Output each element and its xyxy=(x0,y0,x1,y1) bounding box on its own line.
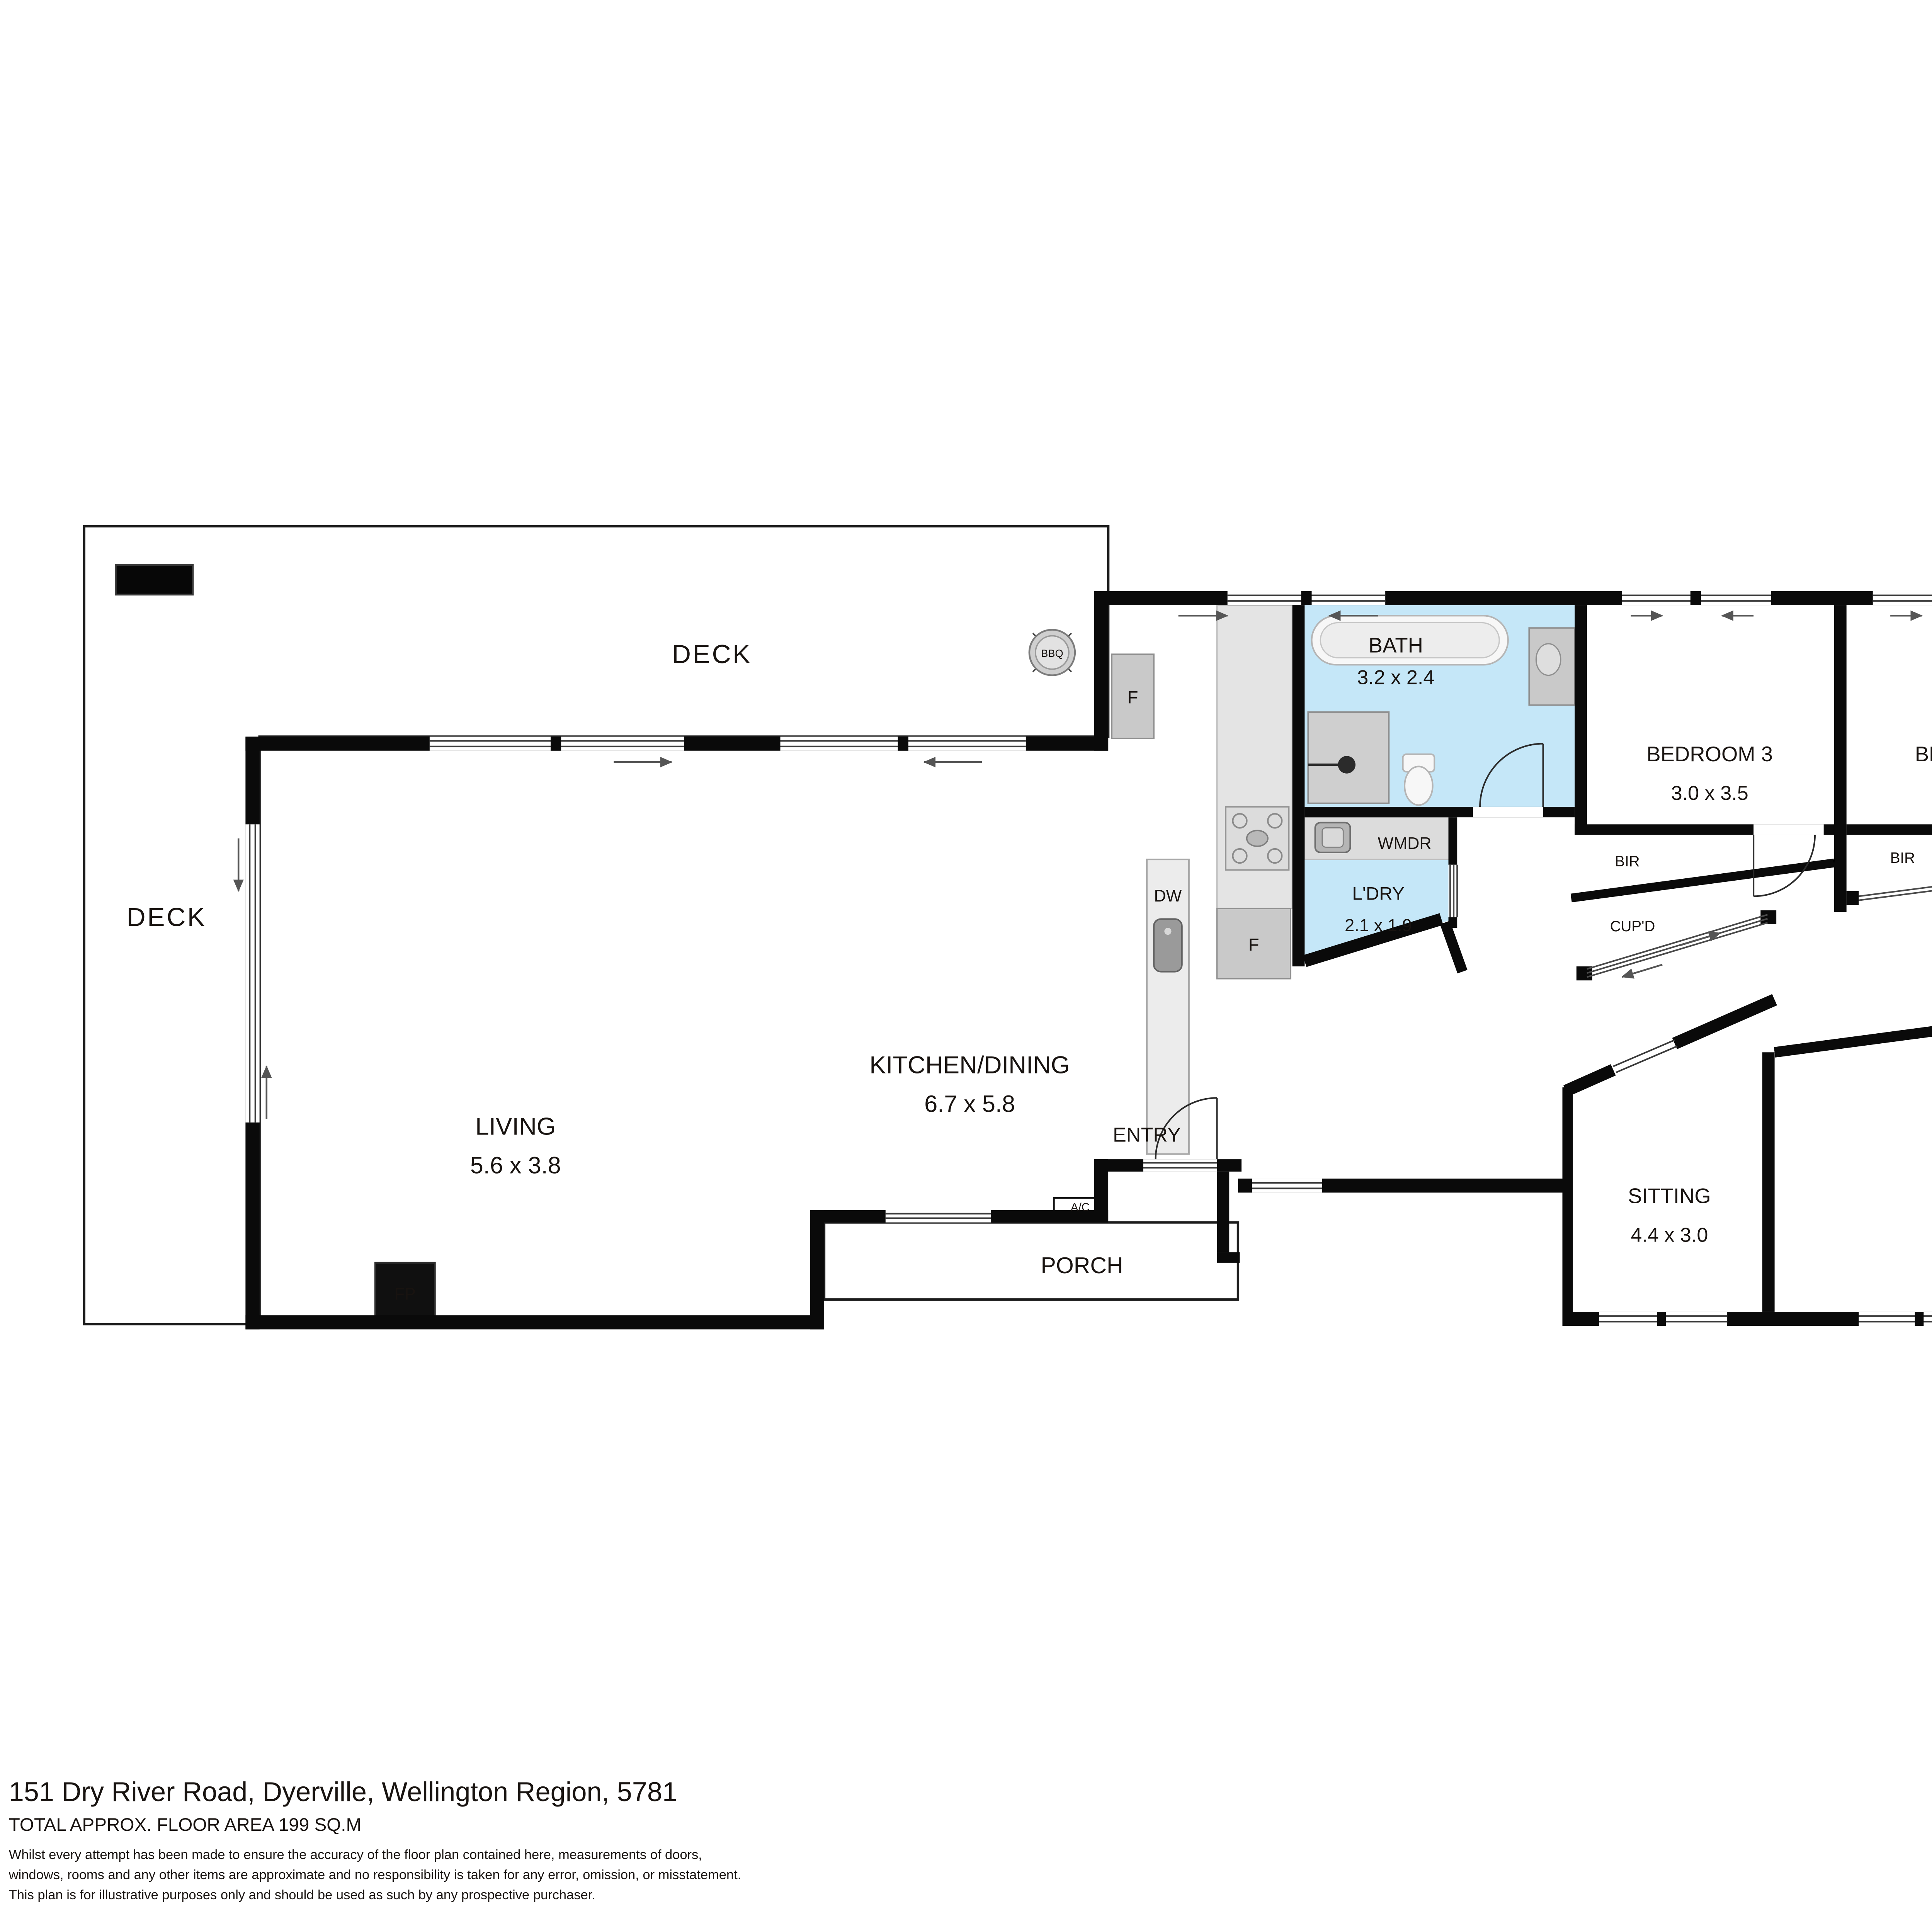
deck-left-outline xyxy=(84,526,1108,1324)
footer-disclaimer-line2: windows, rooms and any other items are a… xyxy=(9,1868,742,1882)
deck-top-label: DECK xyxy=(672,640,752,669)
kitchen-dining-dims: 6.7 x 5.8 xyxy=(924,1091,1015,1117)
ac-label: A/C xyxy=(1071,1201,1090,1214)
fireplace-label: FP xyxy=(395,1285,416,1303)
footer-floor-area: TOTAL APPROX. FLOOR AREA 199 SQ.M xyxy=(9,1815,362,1835)
island-sink-icon xyxy=(1154,919,1182,971)
entry-label: ENTRY xyxy=(1113,1124,1181,1146)
porch-outline xyxy=(824,1222,1238,1300)
cupd1-label: CUP'D xyxy=(1610,918,1655,935)
footer-disclaimer-line1: Whilst every attempt has been made to en… xyxy=(9,1847,702,1862)
cooktop-icon xyxy=(1226,807,1289,870)
footer-disclaimer-line3: This plan is for illustrative purposes o… xyxy=(9,1888,595,1902)
bedroom3-dims: 3.0 x 3.5 xyxy=(1671,782,1748,805)
bir1-label: BIR xyxy=(1615,853,1639,870)
deck-left-label: DECK xyxy=(126,903,206,932)
freezer-label: F xyxy=(1248,935,1259,954)
porch-label: PORCH xyxy=(1041,1253,1123,1278)
bedroom4-label: BEDROOM 4 xyxy=(1915,742,1932,766)
footer: 151 Dry River Road, Dyerville, Wellingto… xyxy=(9,1776,742,1902)
floor-plan-drawing: DECK DECK DECK KITCHEN/DINING 6.7 x 5.8 … xyxy=(0,0,1932,1917)
fridge-label: F xyxy=(1128,687,1138,707)
dw-label: DW xyxy=(1154,887,1182,905)
bir2-label: BIR xyxy=(1890,850,1915,866)
wmdr-label: WMDR xyxy=(1378,834,1432,853)
living-dims: 5.6 x 3.8 xyxy=(470,1152,561,1178)
bedroom3-label: BEDROOM 3 xyxy=(1646,742,1773,766)
floor-plan-page: DECK DECK DECK KITCHEN/DINING 6.7 x 5.8 … xyxy=(0,0,1932,1917)
bath-toilet-icon xyxy=(1403,754,1435,805)
footer-address: 151 Dry River Road, Dyerville, Wellingto… xyxy=(9,1776,677,1807)
sitting-dims: 4.4 x 3.0 xyxy=(1631,1224,1708,1246)
laundry-dims: 2.1 x 1.9 xyxy=(1345,915,1412,935)
bbq-label: BBQ xyxy=(1041,647,1063,659)
kitchen-dining-label: KITCHEN/DINING xyxy=(869,1051,1070,1079)
planter-icon xyxy=(116,565,193,595)
sitting-label: SITTING xyxy=(1628,1184,1711,1208)
bath-dims: 3.2 x 2.4 xyxy=(1357,666,1434,689)
bath-shower-icon xyxy=(1308,712,1389,803)
laundry-label: L'DRY xyxy=(1352,883,1404,904)
living-label: LIVING xyxy=(475,1113,556,1140)
bath-vanity-icon xyxy=(1529,628,1575,705)
bath-label: BATH xyxy=(1369,634,1423,657)
laundry-floor xyxy=(1304,859,1448,963)
